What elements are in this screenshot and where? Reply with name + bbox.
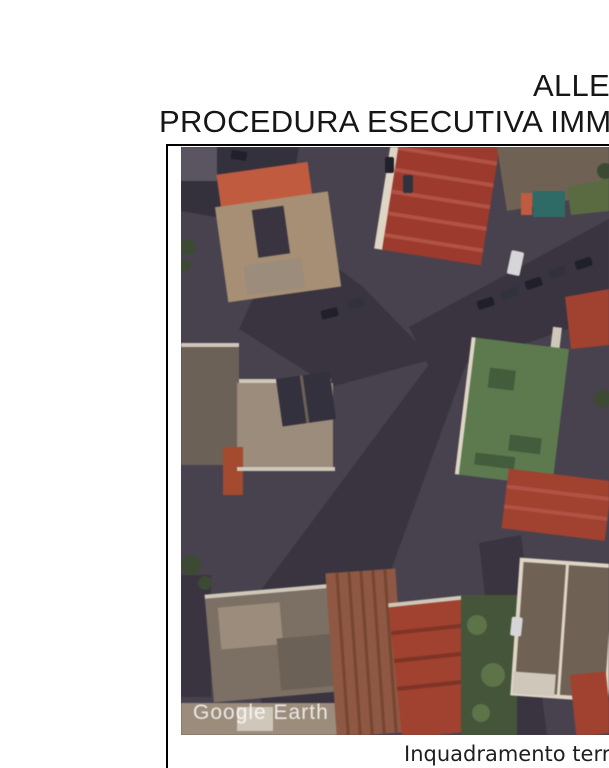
map-caption: Inquadramento terr: [404, 742, 609, 766]
satellite-image: Google Earth: [181, 147, 609, 735]
satellite-photo: Google Earth: [181, 147, 609, 735]
page-title-line-1: ALLE: [533, 70, 609, 101]
page-title-line-2: PROCEDURA ESECUTIVA IMM: [159, 106, 609, 137]
google-earth-watermark: Google Earth: [193, 701, 329, 724]
map-table-cell: Google Earth: [166, 144, 609, 768]
document-page: ALLE PROCEDURA ESECUTIVA IMM: [0, 0, 609, 768]
